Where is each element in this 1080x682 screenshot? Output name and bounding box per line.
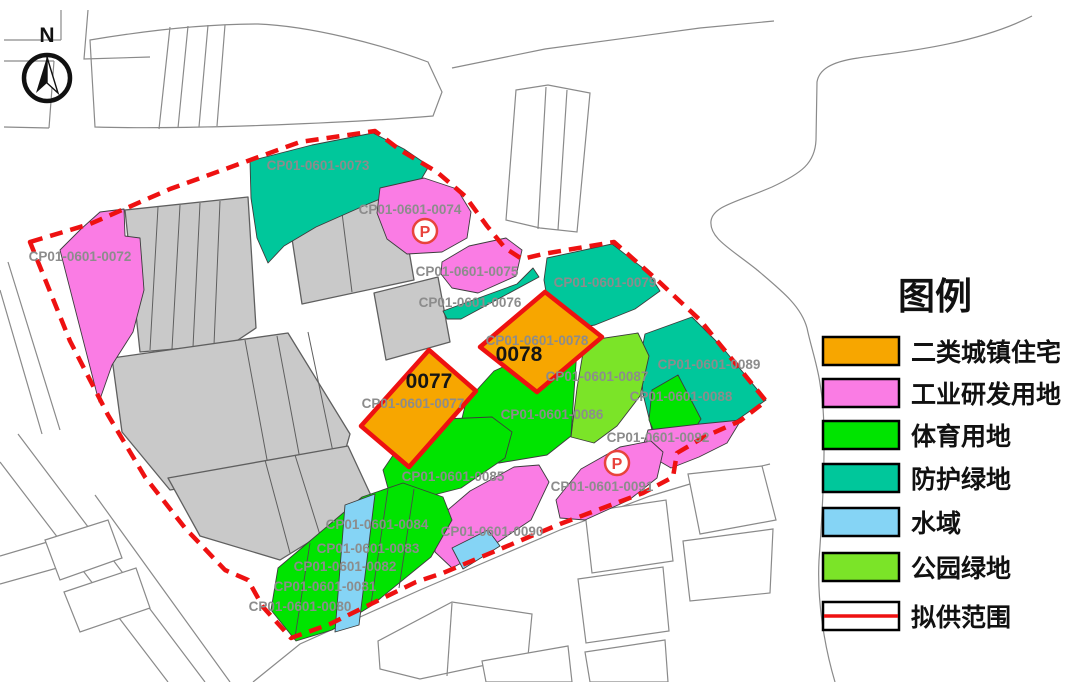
parcel-label-0089: CP01-0601-0089 xyxy=(658,357,761,372)
legend-item-park-green: 公园绿地 xyxy=(823,553,1011,583)
legend-label-boundary: 拟供范围 xyxy=(911,604,1011,632)
legend-item-industrial: 工业研发用地 xyxy=(823,379,1061,409)
legend-label-protective-green: 防护绿地 xyxy=(911,465,1011,494)
legend-item-residential: 二类城镇住宅 xyxy=(823,337,1061,367)
parking-icon-0074: P xyxy=(413,219,437,243)
parking-letter: P xyxy=(420,224,431,241)
legend-swatch-protective-green xyxy=(823,464,899,492)
legend-swatch-sports xyxy=(823,421,899,449)
legend-item-protective-green: 防护绿地 xyxy=(823,464,1011,494)
gray-parcel xyxy=(125,197,256,352)
parcel-label-0083: CP01-0601-0083 xyxy=(317,541,420,556)
parking-icon-0091: P xyxy=(605,451,629,475)
highlight-label-0077: 0077 xyxy=(406,370,453,393)
north-label: N xyxy=(39,24,54,47)
gray-parcel xyxy=(374,277,450,360)
legend-swatch-park-green xyxy=(823,553,899,581)
parcel-label-0072: CP01-0601-0072 xyxy=(29,249,132,264)
legend-label-industrial: 工业研发用地 xyxy=(911,380,1061,409)
parcel-label-0080: CP01-0601-0080 xyxy=(249,599,352,614)
parcel-label-0086: CP01-0601-0086 xyxy=(501,407,604,422)
north-arrow-icon: N xyxy=(24,24,70,101)
legend-label-water: 水域 xyxy=(911,510,961,538)
parcel-label-0087: CP01-0601-0087 xyxy=(546,369,649,384)
parcel-label-0076: CP01-0601-0076 xyxy=(419,295,522,310)
legend-swatch-residential xyxy=(823,337,899,365)
parking-letter: P xyxy=(612,456,623,473)
parcel-label-0075: CP01-0601-0075 xyxy=(416,264,519,279)
parcel-label-0081: CP01-0601-0081 xyxy=(274,579,377,594)
parcel-label-0082: CP01-0601-0082 xyxy=(294,559,397,574)
legend: 图例 二类城镇住宅 工业研发用地 体育用地 防护绿地 水域 公园绿地 拟 xyxy=(823,276,1061,632)
highlight-label-0078: 0078 xyxy=(496,343,543,366)
legend-swatch-water xyxy=(823,508,899,536)
compass-needle-light xyxy=(47,57,58,93)
parcel-label-0077: CP01-0601-0077 xyxy=(362,396,465,411)
compass-needle-dark xyxy=(36,57,47,93)
planning-map: CP01-0601-0072 CP01-0601-0073 CP01-0601-… xyxy=(0,0,1080,682)
parcel-label-0091: CP01-0601-0091 xyxy=(551,479,654,494)
parcel-label-0073: CP01-0601-0073 xyxy=(267,158,370,173)
legend-label-residential: 二类城镇住宅 xyxy=(911,338,1061,367)
legend-label-sports: 体育用地 xyxy=(911,422,1011,451)
parcel-label-0092: CP01-0601-0092 xyxy=(607,430,710,445)
legend-item-sports: 体育用地 xyxy=(823,421,1011,451)
legend-title: 图例 xyxy=(898,276,972,317)
parcel-label-0085: CP01-0601-0085 xyxy=(402,469,505,484)
parcel-label-0090: CP01-0601-0090 xyxy=(441,524,544,539)
legend-item-boundary: 拟供范围 xyxy=(823,602,1011,632)
parcel-label-0079: CP01-0601-0079 xyxy=(554,275,657,290)
parcel-label-0084: CP01-0601-0084 xyxy=(326,517,429,532)
legend-item-water: 水域 xyxy=(823,508,961,538)
map-canvas: CP01-0601-0072 CP01-0601-0073 CP01-0601-… xyxy=(0,0,1080,682)
parcel-label-0088: CP01-0601-0088 xyxy=(630,389,733,404)
parcel-label-0074: CP01-0601-0074 xyxy=(359,202,462,217)
legend-swatch-industrial xyxy=(823,379,899,407)
legend-label-park-green: 公园绿地 xyxy=(911,554,1011,583)
